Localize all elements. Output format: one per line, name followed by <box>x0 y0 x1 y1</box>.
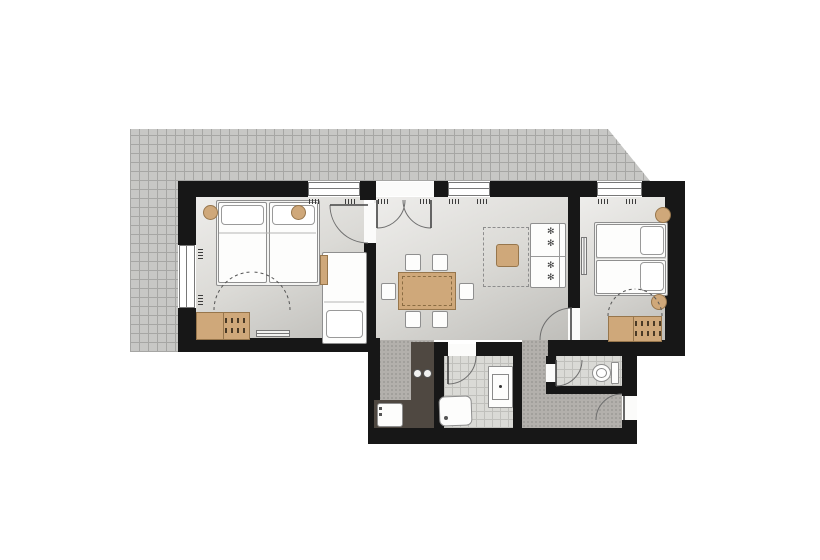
shower <box>438 395 472 426</box>
nightstand-round <box>655 207 671 223</box>
pillow <box>221 205 264 225</box>
nightstand-round <box>651 294 667 310</box>
wall-bath-top-a <box>434 342 448 356</box>
wardrobe-right <box>608 316 662 342</box>
hanger-rail-icon <box>635 331 661 336</box>
living-top-window <box>448 182 490 196</box>
window-tick-icon <box>198 293 203 305</box>
nightstand-round <box>291 205 306 220</box>
radiator <box>256 330 290 337</box>
window-tick-icon <box>309 199 321 204</box>
radiator <box>581 237 587 275</box>
floor-plan: ✻ ✻ ✻ ✻ <box>0 0 820 560</box>
hanger-rail-icon <box>225 328 249 333</box>
wall-top-pillar-1 <box>360 181 376 200</box>
corridor-floor <box>522 340 548 428</box>
chair <box>381 283 396 300</box>
bathroom-door-opening <box>448 344 476 356</box>
wall-top-right <box>642 181 665 197</box>
cooktop-burner-icon <box>413 369 422 378</box>
chair <box>432 254 448 271</box>
wardrobe-divider <box>633 317 634 341</box>
shower-drain-icon <box>444 416 448 420</box>
bedroom-left-side-window <box>179 245 195 308</box>
sofa-pillow-icon: ✻ <box>547 274 555 283</box>
window-tick-icon <box>198 247 203 259</box>
coffee-table <box>496 244 519 267</box>
window-tick-icon <box>477 199 489 204</box>
living-french-door-opening <box>376 182 434 196</box>
window-tick-icon <box>378 199 390 204</box>
toilet-tank <box>611 362 619 384</box>
terrace-tiles-left <box>130 181 178 352</box>
chair <box>405 254 421 271</box>
wall-bottom-right-lower <box>622 420 637 444</box>
wall-right-outer <box>665 181 685 355</box>
cooktop-burner-icon <box>423 369 432 378</box>
chair <box>459 283 474 300</box>
wall-wc-stub-top <box>546 356 556 364</box>
nightstand-round <box>203 205 218 220</box>
wardrobe-left <box>196 312 250 340</box>
sofa-pillow-icon: ✻ <box>547 240 555 249</box>
window-tick-icon <box>345 199 357 204</box>
bedroom-left-door-opening <box>364 203 376 243</box>
toilet-bowl-inner <box>596 368 607 378</box>
kitchen-counter-vertical <box>411 342 434 428</box>
wall-wc-bottom <box>546 386 622 394</box>
sofa-pillow-icon: ✻ <box>547 262 555 271</box>
wall-left-upper <box>178 197 196 245</box>
hall-floor <box>546 392 622 428</box>
pillow <box>326 310 363 338</box>
hanger-rail-icon <box>225 318 249 323</box>
terrace-tiles-top <box>130 129 650 181</box>
pillow <box>640 226 664 255</box>
wall-top-mid <box>490 181 597 197</box>
window-tick-icon <box>449 199 461 204</box>
chair <box>405 311 421 328</box>
window-tick-icon <box>626 199 638 204</box>
wall-top-left <box>178 181 308 197</box>
dining-table <box>398 272 456 310</box>
sofa-cushion-divider <box>531 256 565 257</box>
washbasin-drain-icon <box>499 385 502 388</box>
pillow <box>640 262 664 291</box>
table-inner-line <box>402 276 452 306</box>
hanger-rail-icon <box>635 321 661 326</box>
bedroom-right-top-window <box>597 182 642 196</box>
window-tick-icon <box>420 199 432 204</box>
bedroom-left-top-window <box>308 182 360 196</box>
sink-faucet-icon <box>379 407 382 410</box>
single-bed-shelf <box>320 255 328 285</box>
window-tick-icon <box>598 199 610 204</box>
chair <box>432 311 448 328</box>
wardrobe-divider <box>223 313 224 339</box>
sofa-pillow-icon: ✻ <box>547 228 555 237</box>
wall-bath-right <box>513 342 522 428</box>
wall-living-bottom-right <box>548 340 685 356</box>
wall-bottom-right-upper <box>622 356 637 396</box>
bedroom-right-door-opening <box>568 308 580 340</box>
wc-door-opening <box>546 364 556 382</box>
sink-faucet-icon <box>379 413 382 416</box>
wall-top-pillar-2 <box>434 181 448 197</box>
wall-living-bedright <box>568 197 580 308</box>
wall-bottom-main <box>368 428 637 444</box>
entrance-door-opening <box>622 396 637 420</box>
